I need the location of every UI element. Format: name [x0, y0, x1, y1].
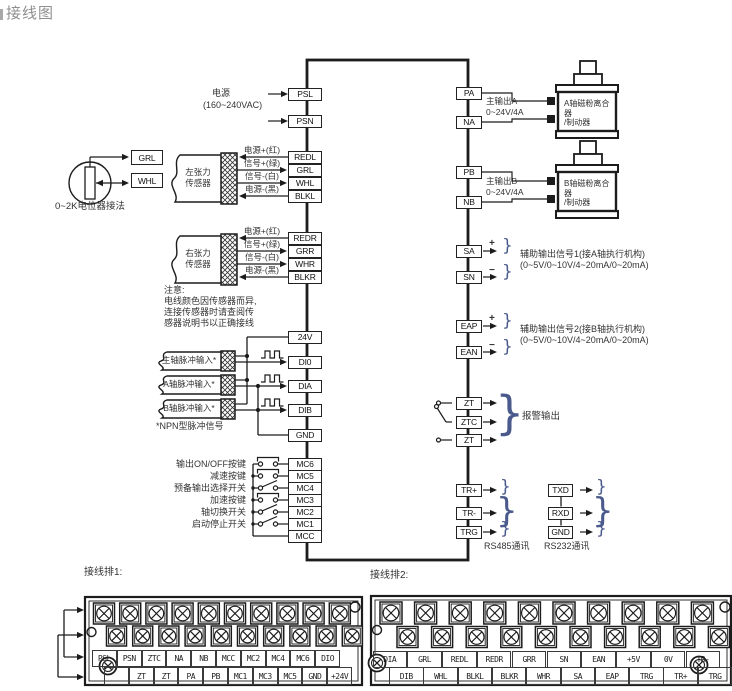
switch-symbols: [251, 458, 288, 537]
terminal-left-blkr: BLKR: [288, 271, 322, 284]
strip-cell-trg: TRG: [629, 667, 664, 685]
terminal-rs232-gnd: GND: [548, 526, 573, 539]
strip-cell-mcc: MCC: [216, 650, 241, 667]
sensor-wire-label: 信号-(白): [234, 253, 290, 263]
strip-cell-tr+: TR+: [663, 667, 698, 685]
polarity-minus-mark: −: [489, 265, 495, 277]
terminal-right-eap: EAP: [456, 320, 482, 333]
strip-cell-redl: REDL: [442, 651, 477, 668]
wiring-diagram: 接线图 电源 (160~240VAC) 0~2K电位器接法 左张力 传感器 右张…: [0, 0, 732, 691]
strip-cell-psn: PSN: [117, 650, 142, 667]
polarity-minus-mark: −: [489, 340, 495, 352]
terminal-left-blkl: BLKL: [288, 190, 322, 203]
strip1-title: 接线排1:: [84, 567, 122, 579]
terminal-left-grl: GRL: [288, 164, 322, 177]
pulse-cable-label: A轴脉冲输入*: [160, 380, 218, 390]
strip-cell-mc4: MC4: [266, 650, 291, 667]
group-brace: }: [495, 390, 524, 436]
strip-cell-sa: SA: [561, 667, 596, 685]
strip-cell-blank: [104, 667, 129, 685]
terminal-rs232-rxd: RXD: [548, 507, 573, 520]
terminal-right-ean: EAN: [456, 346, 482, 359]
group-brace: }: [502, 313, 513, 330]
page-title: 接线图: [6, 5, 54, 22]
main-output-b-line2: 0~24V/4A: [486, 188, 524, 198]
potentiometer-symbol: [69, 154, 129, 204]
strip-cell-dib: DIB: [389, 667, 424, 685]
strip-cell-na: NA: [166, 650, 191, 667]
terminal-right-sa: SA: [456, 245, 482, 258]
sensor-note-line4: 感器说明书以正确接线: [164, 318, 254, 328]
alarm-contact-symbol: [435, 401, 453, 442]
terminal-left-redr: REDR: [288, 232, 322, 245]
controller-box: [307, 60, 468, 560]
strip-cell-dio: DIO: [315, 650, 340, 667]
sensor-wire-label: 电源-(黑): [234, 266, 290, 276]
sensor-wire-label: 信号-(白): [234, 172, 290, 182]
terminal-right-ztc: ZTC: [456, 416, 482, 429]
power-label-line2: (160~240VAC): [203, 100, 262, 110]
terminal-left-di0: DI0: [288, 356, 322, 369]
main-output-b-line1: 主输出B: [486, 177, 517, 187]
sensor-wire-label: 信号+(绿): [234, 240, 290, 250]
sensor-wire-label: 电源-(黑): [234, 185, 290, 195]
left-sensor-label: 左张力 传感器: [176, 167, 220, 188]
terminal-left-psl: PSL: [288, 88, 322, 101]
strip-cell-mc1: MC1: [228, 667, 253, 685]
aux-output2-line1: 辅助输出信号2(接B轴执行机构): [520, 324, 645, 334]
strip-cell-gnd: GND: [302, 667, 327, 685]
terminal-right-tr+: TR+: [456, 484, 482, 497]
strip-cell-+24v: +24V: [327, 667, 352, 685]
terminal-right-nb: NB: [456, 196, 482, 209]
terminal-right-zt: ZT: [456, 397, 482, 410]
strip-cell-mc6: MC6: [290, 650, 315, 667]
aux-output2-line2: (0~5V/0~10V/4~20mA/0~20mA): [520, 335, 649, 345]
switch-label: 加速按键: [126, 495, 246, 505]
strip-cell-zt: ZT: [129, 667, 154, 685]
group-brace: }: [502, 238, 513, 255]
switch-label: 减速按键: [126, 471, 246, 481]
strip-cell-mc2: MC2: [241, 650, 266, 667]
group-brace: }: [502, 339, 513, 356]
strip-cell-tr-: TR-: [686, 651, 721, 668]
alarm-output-label: 报警输出: [522, 412, 560, 423]
terminal-right-sn: SN: [456, 271, 482, 284]
clutch-b-label: B轴磁粉离合器 /制动器: [564, 179, 614, 208]
terminal-rs232-txd: TXD: [548, 484, 573, 497]
strip-cell-mc3: MC3: [253, 667, 278, 685]
strip-cell-blkl: BLKL: [458, 667, 493, 685]
terminal-left-dib: DIB: [288, 404, 322, 417]
strip-cell-grl: GRL: [407, 651, 442, 668]
aux-output1-line2: (0~5V/0~10V/4~20mA/0~20mA): [520, 260, 649, 270]
right-sensor-label: 右张力 传感器: [176, 248, 220, 269]
switch-label: 输出ON/OFF按键: [126, 459, 246, 469]
main-output-a-line1: 主输出A: [486, 97, 517, 107]
group-brace: }: [500, 521, 511, 538]
strip1-row-pointers: [58, 607, 84, 680]
clutch-a-label: A轴磁粉离合器 /制动器: [564, 99, 614, 128]
rs485-label: RS485通讯: [484, 541, 530, 551]
polarity-plus-mark: +: [489, 313, 495, 325]
strip-cell-redr: REDR: [477, 651, 512, 668]
pulse-cable-label: 主轴脉冲输入*: [160, 356, 218, 366]
strip-cell-whl: WHL: [423, 667, 458, 685]
terminal-left-psn: PSN: [288, 115, 322, 128]
group-brace: }: [502, 264, 513, 281]
power-input-arrows: [268, 91, 288, 124]
pulse-cable-label: B轴脉冲输入*: [160, 404, 218, 414]
strip2-title: 接线排2:: [370, 570, 408, 582]
terminal-left-dia: DIA: [288, 380, 322, 393]
terminal-left-whr: WHR: [288, 258, 322, 271]
group-brace: }: [596, 521, 607, 538]
npn-note: *NPN型脉冲信号: [156, 421, 224, 431]
strip-cell-dia: DIA: [373, 651, 408, 668]
sensor-note-line1: 注意:: [164, 285, 185, 295]
strip-cell-trg: TRG: [698, 667, 732, 685]
terminal-right-na: NA: [456, 116, 482, 129]
strip-cell-nb: NB: [191, 650, 216, 667]
strip-cell-whr: WHR: [526, 667, 561, 685]
terminal-left-grr: GRR: [288, 245, 322, 258]
polarity-plus-mark: +: [489, 238, 495, 250]
strip-cell-mc5: MC5: [278, 667, 303, 685]
pot-terminal-grl: GRL: [131, 150, 163, 165]
title-fragment: [0, 9, 3, 20]
potentiometer-caption: 0~2K电位器接法: [55, 202, 125, 213]
strip-cell-grr: GRR: [512, 651, 547, 668]
strip-cell-zt: ZT: [154, 667, 179, 685]
strip-cell-ean: EAN: [581, 651, 616, 668]
sensor-note-line2: 电线颜色因传感器而异,: [164, 296, 257, 306]
terminal-left-mcc: MCC: [288, 530, 322, 543]
strip-cell-+5v: +5V: [616, 651, 651, 668]
terminal-left-redl: REDL: [288, 151, 322, 164]
power-label-line1: 电源: [212, 88, 230, 98]
strip-cell-eap: EAP: [595, 667, 630, 685]
terminal-left-24v: 24V: [288, 331, 322, 344]
strip-cell-sn: SN: [547, 651, 582, 668]
switch-label: 预备输出选择开关: [126, 483, 246, 493]
switch-label: 轴切换开关: [126, 507, 246, 517]
sensor-wire-label: 信号+(绿): [234, 159, 290, 169]
sensor-wire-label: 电源+(红): [234, 146, 290, 156]
switch-label: 启动停止开关: [126, 519, 246, 529]
terminal-left-gnd: GND: [288, 429, 322, 442]
terminal-right-pa: PA: [456, 87, 482, 100]
terminal-right-zt: ZT: [456, 434, 482, 447]
strip-cell-blkr: BLKR: [492, 667, 527, 685]
terminal-right-pb: PB: [456, 166, 482, 179]
aux-output1-line1: 辅助输出信号1(接A轴执行机构): [520, 249, 645, 259]
strip-cell-pa: PA: [178, 667, 203, 685]
terminal-right-tr-: TR-: [456, 507, 482, 520]
main-output-a-line2: 0~24V/4A: [486, 108, 524, 118]
strip-cell-0v: 0V: [651, 651, 686, 668]
strip-cell-psl: PSL: [92, 650, 117, 667]
terminal-left-whl: WHL: [288, 177, 322, 190]
sensor-wire-label: 电源+(红): [234, 227, 290, 237]
sensor-note-line3: 连接传感器时请查阅传: [164, 307, 254, 317]
strip-cell-ztc: ZTC: [142, 650, 167, 667]
strip-cell-pb: PB: [203, 667, 228, 685]
rs232-label: RS232通讯: [544, 541, 590, 551]
wiring-lines-layer: [0, 0, 732, 691]
terminal-right-trg: TRG: [456, 526, 482, 539]
pot-terminal-whl: WHL: [131, 173, 163, 188]
